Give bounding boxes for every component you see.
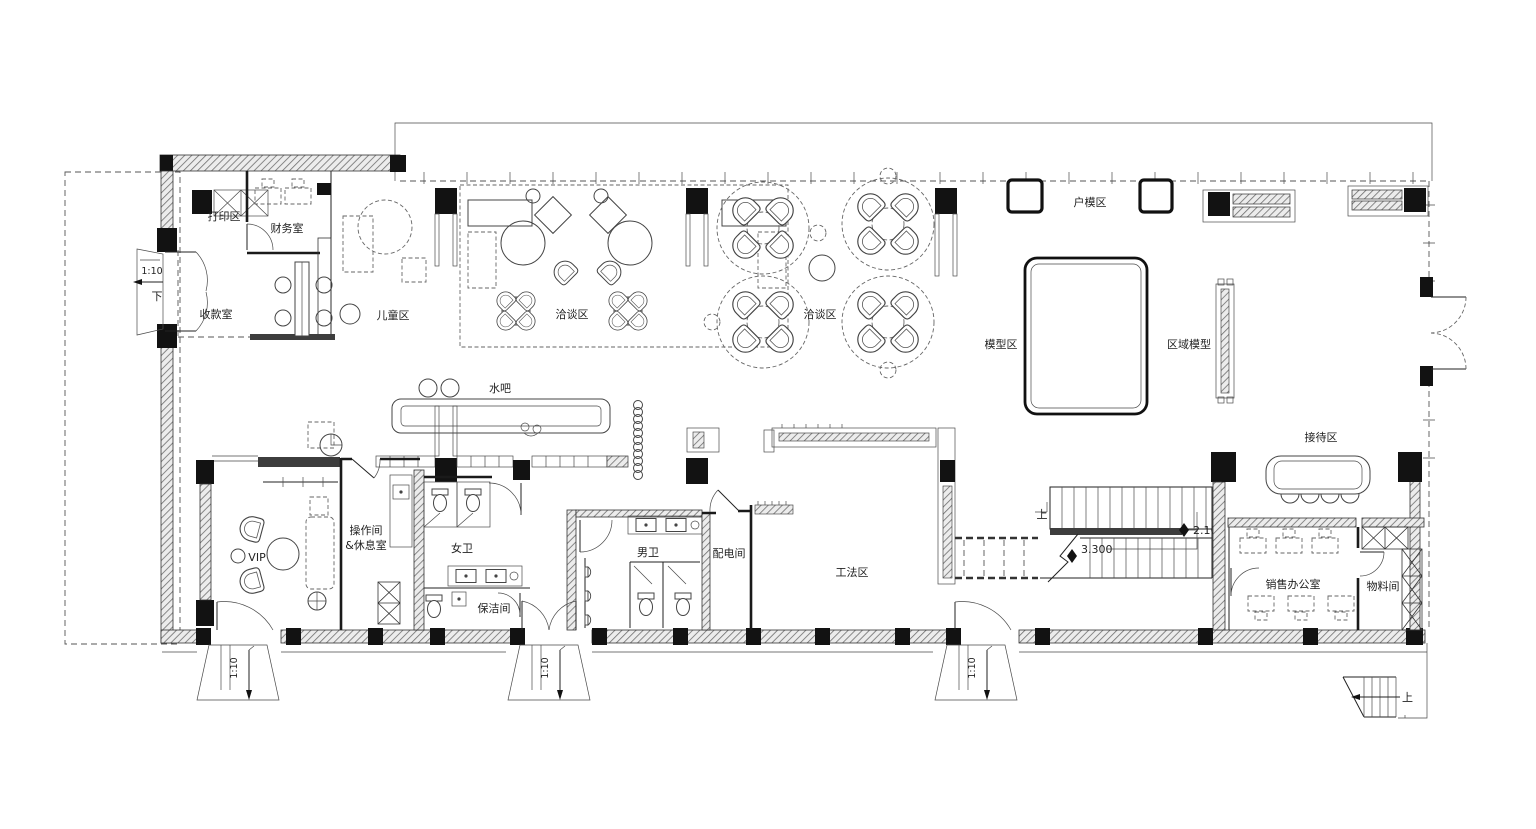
label-water-bar: 水吧 [489, 382, 511, 395]
room-sales-office: 销售办公室 [1228, 518, 1424, 630]
dining-set [605, 288, 650, 333]
ramp-west-arrow [133, 279, 142, 285]
label-lounge-west: 洽谈区 [556, 308, 589, 321]
finance-desks [255, 179, 311, 204]
deco-corridor [308, 422, 342, 456]
label-unit-model-area: 户模区 [1074, 195, 1107, 209]
area-unit-model: 户模区 [1008, 180, 1172, 212]
label-vip: VIP [248, 551, 266, 564]
material-door [1360, 552, 1384, 576]
bead-screen [634, 401, 643, 480]
ramp-west-down: 下 [152, 290, 163, 303]
curtain-mullions-top [424, 172, 1413, 184]
room-vip: VIP [196, 456, 341, 630]
reception-desk [1266, 456, 1370, 503]
sales-door [1231, 568, 1259, 596]
room-pantry: 操作间 &休息室 [341, 459, 420, 624]
pantry-counter [390, 475, 412, 547]
material-storage-top [1362, 527, 1408, 549]
display-wall-top [764, 424, 936, 452]
label-material-room: 物料间 [1367, 579, 1400, 593]
label-construction-method: 工法区 [836, 565, 869, 579]
display-wall-1 [1203, 190, 1295, 222]
finance-door [247, 224, 273, 250]
ramp2-slope: 1:10 [540, 657, 551, 678]
label-electrical-room: 配电间 [713, 547, 746, 560]
elevation-high-text: 3.300 [1081, 543, 1113, 556]
sales-desks [1240, 529, 1354, 620]
wall-right-of-gongfa [938, 428, 955, 584]
booth [842, 178, 934, 270]
room-print-area: 打印区 [192, 190, 268, 223]
room-mens-restroom: 男卫 [567, 510, 702, 630]
ramp-south-3: 1:10 [935, 602, 1017, 700]
mens-stalls [630, 562, 700, 628]
label-lounge-east: 洽谈区 [804, 308, 837, 321]
label-model-area: 模型区 [985, 337, 1018, 351]
area-regional-model: 区域模型 [1167, 279, 1234, 403]
room-construction-method: 工法区 [751, 424, 955, 630]
label-cashier-room: 收款室 [200, 307, 233, 321]
ramp-west: 1:10 下 [133, 249, 207, 335]
label-cleaning-room: 保洁间 [478, 601, 511, 615]
ramp1-slope: 1:10 [229, 657, 240, 678]
area-reception: 接待区 [1222, 430, 1422, 503]
room-kids-area: 儿童区 [340, 200, 426, 324]
room-electrical: 配电间 [702, 490, 750, 630]
pantry-storage [378, 582, 400, 624]
label-pantry-line2: &休息室 [345, 538, 387, 552]
canopy-outline [395, 123, 1432, 181]
dining-set [493, 288, 538, 333]
booth [842, 276, 934, 368]
label-pantry-line1: 操作间 [350, 523, 383, 537]
booth [717, 276, 809, 368]
label-regional-model: 区域模型 [1167, 337, 1211, 351]
label-kids-area: 儿童区 [377, 308, 410, 322]
label-print-area: 打印区 [208, 209, 241, 223]
area-water-bar: 水吧 [392, 379, 610, 436]
mens-sinks [628, 516, 702, 534]
area-model: 模型区 [985, 258, 1148, 414]
label-sales-office: 销售办公室 [1266, 577, 1321, 591]
south1-door [217, 602, 273, 630]
exterior-stair: 上 [1343, 677, 1413, 717]
display-stand [687, 428, 719, 452]
exterior-stair-enclosure [1398, 643, 1427, 718]
main-stair: 上 3.300 2.100 [955, 452, 1227, 630]
label-mens-restroom: 男卫 [637, 546, 659, 559]
south3-door [955, 602, 1011, 630]
meeting-table [275, 262, 332, 336]
room-cleaning: 保洁间 [424, 588, 530, 618]
curtain-mullions-right [1423, 205, 1435, 458]
mid-partition [376, 406, 719, 484]
stair-treads-upper [1062, 487, 1206, 529]
exterior-stair-up-label: 上 [1402, 691, 1413, 704]
booth [717, 182, 809, 274]
wc-stalls [424, 482, 490, 527]
label-finance-room: 财务室 [271, 221, 304, 235]
floor-plan-canvas: 打印区 财务室 收款室 1:10 下 儿童区 [0, 0, 1536, 829]
room-finance: 财务室 [247, 171, 320, 253]
electrical-door [710, 490, 740, 512]
wc-sinks [448, 566, 522, 586]
main-entrance-door [1431, 297, 1466, 369]
ramp-west-slope: 1:10 [141, 266, 162, 277]
room-lounge-east: 洽谈区 [704, 168, 934, 378]
floor-plan-drawing: 打印区 财务室 收款室 1:10 下 儿童区 [0, 0, 1536, 829]
womens-door [489, 483, 521, 515]
label-reception-area: 接待区 [1305, 430, 1338, 444]
display-wall-2 [1348, 186, 1428, 216]
stair-up-label: 上 [1037, 508, 1048, 521]
ramp3-slope: 1:10 [967, 657, 978, 678]
label-womens-restroom: 女卫 [451, 541, 473, 555]
mens-door [580, 520, 612, 552]
elevation-marker-high [1067, 549, 1077, 563]
